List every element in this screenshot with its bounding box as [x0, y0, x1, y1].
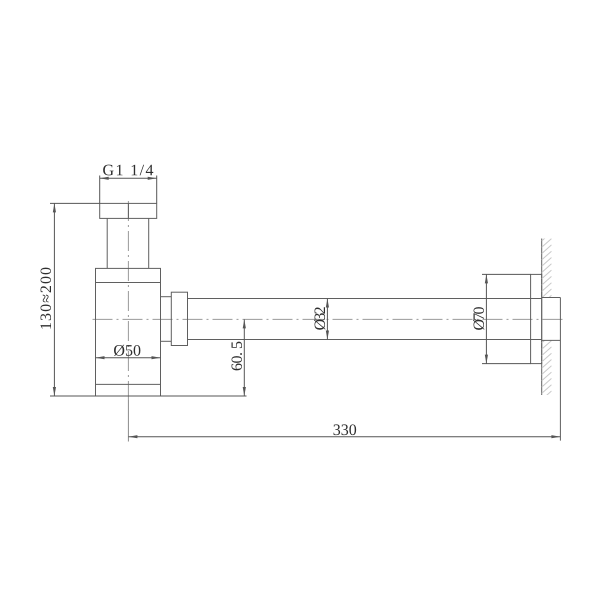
svg-text:Ø70: Ø70 — [471, 307, 488, 331]
svg-text:330: 330 — [333, 422, 357, 439]
svg-text:130≈200: 130≈200 — [38, 267, 55, 330]
svg-text:60. 5: 60. 5 — [229, 341, 246, 371]
svg-text:G1 1/4: G1 1/4 — [102, 162, 153, 179]
svg-text:Ø32: Ø32 — [312, 306, 329, 330]
svg-text:Ø50: Ø50 — [113, 343, 141, 360]
